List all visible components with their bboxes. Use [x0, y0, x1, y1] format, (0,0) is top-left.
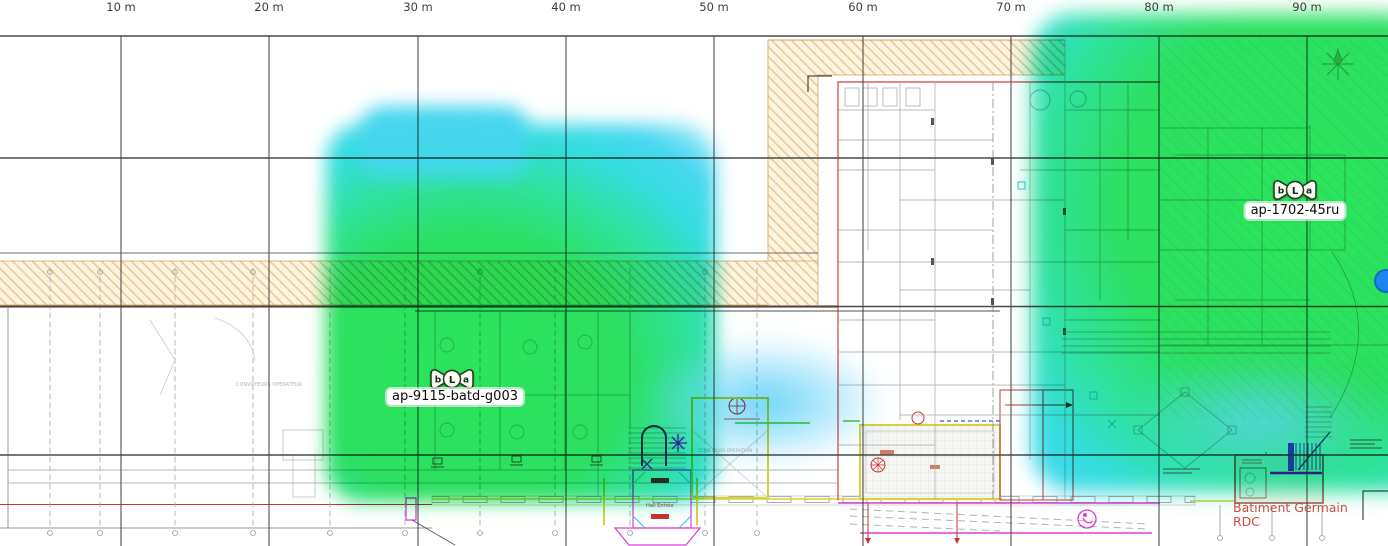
- ap-label-ap-9115-batd-g003[interactable]: ap-9115-batd-g003: [387, 389, 523, 405]
- roof-hatch-texture: [1160, 36, 1388, 420]
- svg-text:a: a: [463, 376, 469, 386]
- building-title-line2: RDC: [1233, 515, 1348, 529]
- entrance-hall-stairs: Hall Entrée: [604, 398, 760, 545]
- building-title: Batiment Germain RDC: [1233, 501, 1348, 528]
- ruler-label: 90 m: [1292, 0, 1322, 14]
- svg-text:L: L: [1292, 186, 1299, 197]
- svg-text:a: a: [1306, 187, 1312, 197]
- hatched-corridors: [0, 40, 1065, 307]
- ruler: 10 m 20 m 30 m 40 m 50 m 60 m 70 m 80 m …: [0, 0, 1388, 16]
- svg-text:Hall Entrée: Hall Entrée: [646, 502, 674, 509]
- svg-text:b: b: [435, 376, 442, 386]
- svg-text:b: b: [1278, 187, 1285, 197]
- svg-text:ZONE HORS OPERATION: ZONE HORS OPERATION: [698, 448, 752, 454]
- ruler-label: 20 m: [254, 0, 284, 14]
- ruler-label: 50 m: [699, 0, 729, 14]
- ruler-label: 40 m: [551, 0, 581, 14]
- access-ramp: [838, 503, 1160, 544]
- ruler-label: 80 m: [1144, 0, 1174, 14]
- ruler-label: 30 m: [403, 0, 433, 14]
- svg-text:L: L: [449, 375, 456, 386]
- ap-bla-icon: b L a: [1272, 177, 1318, 203]
- map-canvas[interactable]: CONVOYEURS OPERATEUR: [0, 0, 1388, 546]
- building-title-line1: Batiment Germain: [1233, 501, 1348, 515]
- floorplan-drawing: CONVOYEURS OPERATEUR: [0, 0, 1388, 546]
- ruler-label: 10 m: [106, 0, 136, 14]
- ruler-label: 60 m: [848, 0, 878, 14]
- ruler-label: 70 m: [996, 0, 1026, 14]
- ap-label-ap-1702-45ru[interactable]: ap-1702-45ru: [1246, 203, 1345, 219]
